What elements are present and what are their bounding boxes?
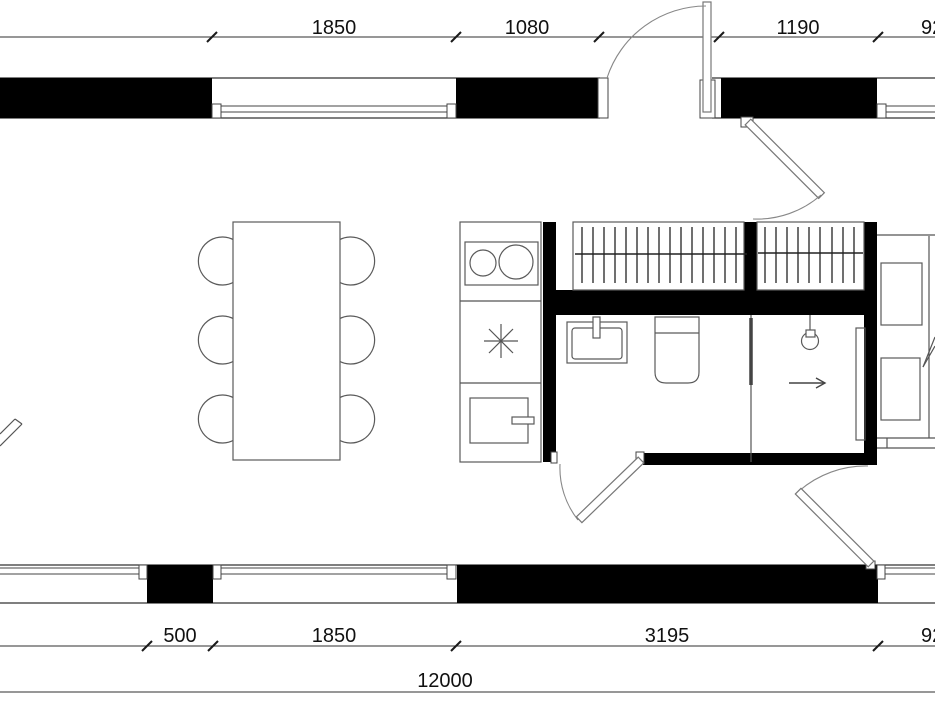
floor-plan-canvas: 1850 1080 1190 92 500 1850 3195 92 12000: [0, 0, 935, 715]
wardrobe-right: [757, 222, 864, 290]
direction-arrow: [789, 378, 825, 388]
floor-plan-drawing: 1850 1080 1190 92 500 1850 3195 92 12000: [0, 0, 935, 715]
chair: [339, 395, 375, 443]
entry-door-top: [598, 2, 715, 118]
wall-segment: [457, 565, 878, 603]
wall-segment: [721, 78, 877, 118]
dim-label-top-1190: 1190: [776, 17, 819, 39]
wall-segment: [147, 565, 213, 603]
left-edge-door-cut: [0, 419, 22, 446]
toilet: [655, 317, 699, 383]
wardrobe-left: [573, 222, 747, 290]
window-top-left: [212, 104, 456, 118]
dim-label-bottom-500: 500: [163, 625, 196, 647]
window-bottom-middle: [213, 565, 456, 579]
washbasin: [567, 317, 627, 363]
window-bottom-right: [877, 565, 935, 579]
kitchen-counter: [460, 222, 541, 462]
dim-label-top-1080: 1080: [505, 17, 550, 39]
sliding-panel: [856, 328, 865, 440]
appliance: [881, 263, 922, 325]
right-side-counter: [877, 235, 935, 448]
window-top-right: [877, 104, 935, 118]
bathroom-door: [551, 452, 644, 523]
hall-side-door: [795, 466, 875, 569]
chair: [339, 316, 375, 364]
bottom-dimension-line: [0, 641, 935, 651]
top-exterior-wall: [0, 78, 935, 118]
tap-icon: [593, 317, 600, 338]
dim-label-overall-12000: 12000: [417, 670, 473, 692]
chair: [339, 237, 375, 285]
ceiling-lamp: [802, 315, 819, 350]
door-swing-arc: [799, 466, 868, 491]
dim-label-top-clipped: 92: [921, 17, 935, 39]
door-jamb: [598, 78, 608, 118]
door-swing-arc: [753, 195, 821, 219]
wall-segment: [456, 78, 600, 118]
dim-label-top-1850: 1850: [312, 17, 357, 39]
door-leaf: [576, 457, 643, 522]
dining-table: [233, 222, 340, 460]
chair: [198, 316, 234, 364]
door-leaf: [795, 488, 873, 566]
wall-segment: [643, 453, 866, 465]
wall-segment: [864, 222, 877, 465]
hall-door-45deg: [741, 117, 824, 219]
dim-label-bottom-1850: 1850: [312, 625, 357, 647]
door-swing-arc: [560, 464, 578, 520]
chair: [198, 237, 234, 285]
dim-label-bottom-clipped: 92: [921, 625, 935, 647]
door-swing-arc: [607, 6, 706, 78]
appliance: [881, 358, 920, 420]
door-jamb: [551, 452, 557, 463]
wall-segment: [543, 222, 556, 462]
door-leaf: [703, 2, 711, 112]
door-leaf: [745, 119, 824, 198]
dim-label-bottom-3195: 3195: [645, 625, 690, 647]
extractor-symbol: [484, 324, 518, 358]
wall-segment: [744, 222, 757, 290]
window-bottom-left: [0, 565, 147, 579]
tap-icon: [512, 417, 534, 424]
chair: [198, 395, 234, 443]
wall-segment: [543, 290, 877, 315]
wall-segment: [0, 78, 212, 118]
bottom-exterior-wall: [0, 565, 935, 603]
